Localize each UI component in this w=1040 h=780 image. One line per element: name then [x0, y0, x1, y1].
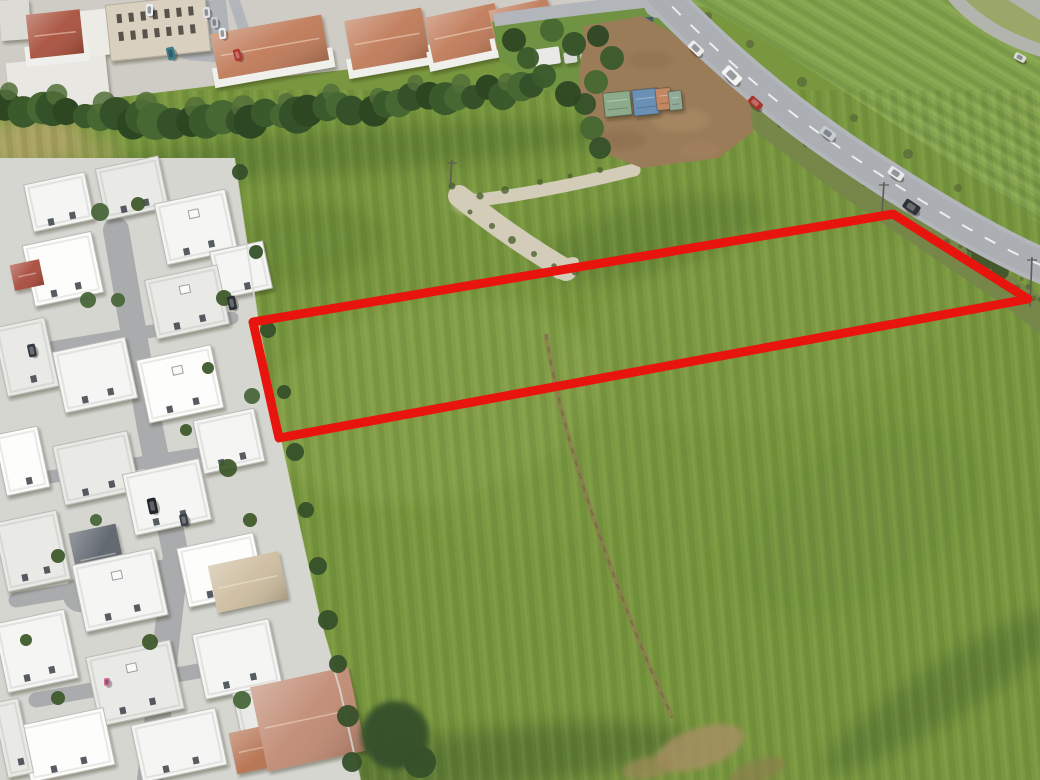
aerial-photo-canvas [0, 0, 1040, 780]
shipping-container [668, 90, 683, 110]
shipping-container [603, 91, 632, 118]
apartment-block [105, 0, 210, 61]
estate-white-villa [0, 609, 78, 692]
aerial-photo [0, 0, 1040, 780]
terracotta-roof-house [21, 9, 90, 67]
